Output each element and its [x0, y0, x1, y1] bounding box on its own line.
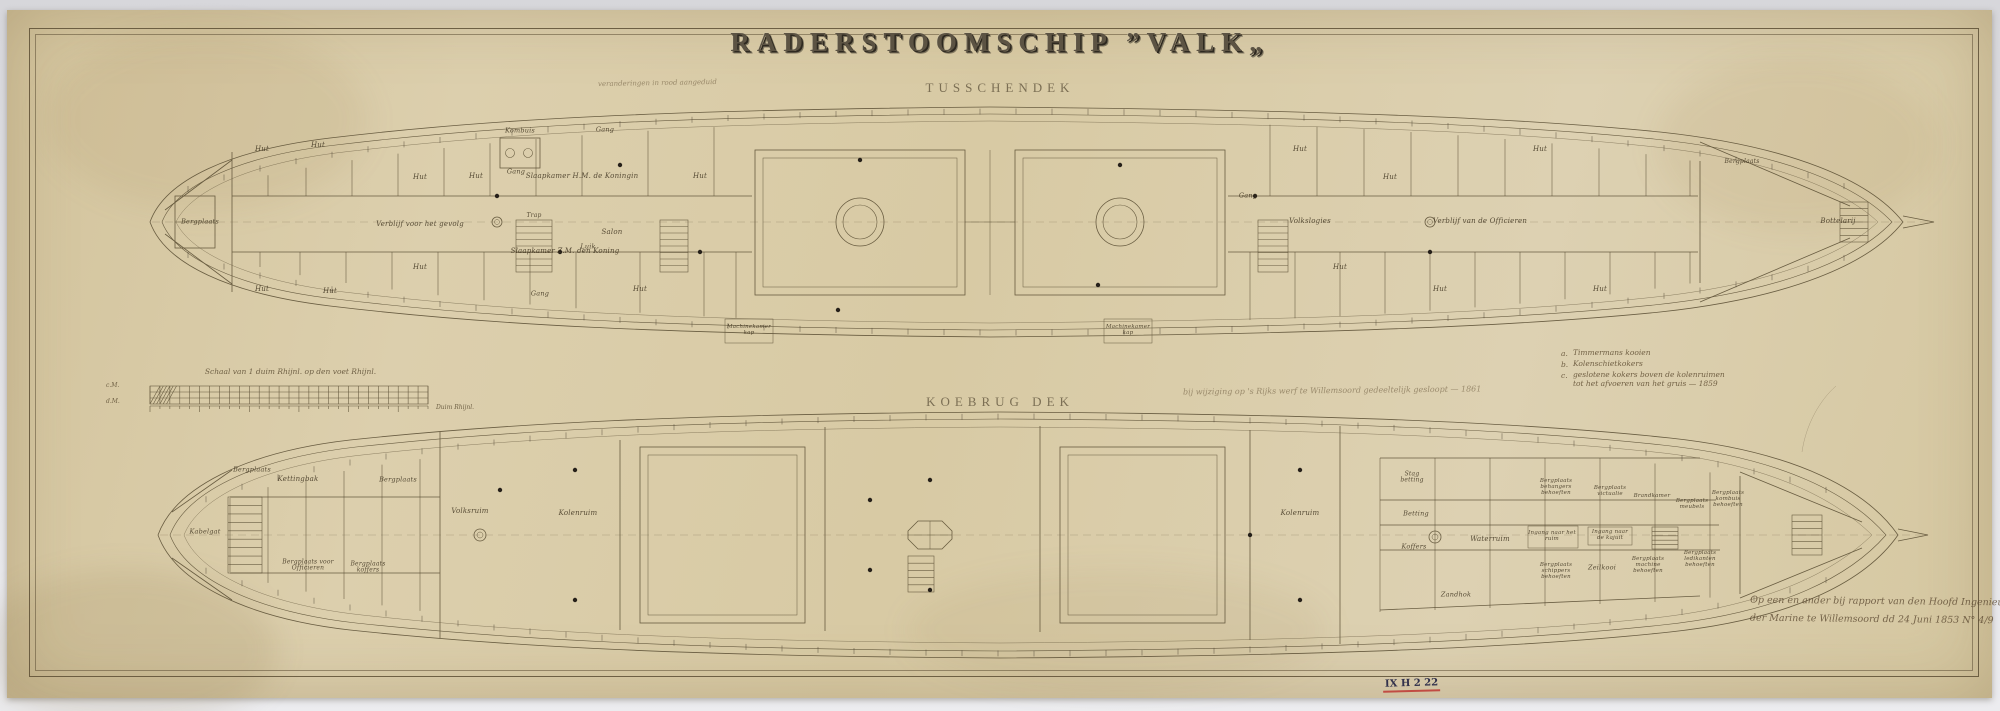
room-label: Volksruim [451, 508, 488, 516]
room-label: Bottelarij [1820, 218, 1855, 226]
room-label: Bergplaats behangers behoeften [1529, 479, 1584, 497]
room-label: Machinekamer kap [1105, 325, 1151, 337]
room-label: Slaapkamer H.M. de Koningin [526, 173, 639, 181]
room-label: Luik [580, 243, 595, 250]
room-label: Verblijf van de Officieren [1433, 218, 1527, 226]
room-label: Hut [1433, 286, 1447, 294]
room-label: Bergplaats victualie [1585, 486, 1635, 498]
room-label: Brandkamer [1632, 494, 1672, 500]
inscription-line-2: der Marine te Willemsoord dd 24 Juni 185… [1750, 609, 2000, 629]
room-label: Hut [255, 286, 269, 294]
legend: a.Timmermans kooienb.Kolenschietkokersc.… [1561, 349, 1725, 390]
legend-key: a. [1561, 349, 1573, 358]
room-label: Hut [469, 173, 483, 181]
room-label: Hut [323, 288, 337, 296]
room-label: Hut [1383, 174, 1397, 182]
legend-item: c.geslotene kokers boven de kolenruimen … [1561, 371, 1725, 388]
room-label: Kolenruim [559, 510, 598, 518]
room-label: Kettingbak [278, 476, 319, 484]
legend-text: Timmermans kooien [1573, 349, 1651, 358]
legend-item: b.Kolenschietkokers [1561, 360, 1725, 369]
scale-row-label-cm: c.M. [106, 382, 119, 389]
plan-world: RADERSTOOMSCHIP ”VALK„ veranderingen in … [0, 0, 2000, 711]
legend-item: a.Timmermans kooien [1561, 349, 1725, 358]
room-label: Ingang naar de kajuit [1588, 530, 1632, 542]
room-label: Hut [1293, 146, 1307, 154]
scale-row-label-dm: d.M. [106, 398, 120, 405]
room-label: Hut [693, 173, 707, 181]
drawing-title: RADERSTOOMSCHIP ”VALK„ [0, 27, 2000, 58]
room-label: Kabelgat [189, 528, 220, 535]
inscription-line-1: Op een en ander bij rapport van den Hoof… [1750, 592, 2000, 612]
scale-end-label: Duim Rhijnl. [436, 404, 474, 411]
room-label: Hut [413, 174, 427, 182]
room-label: Zandhok [1441, 591, 1471, 598]
room-label: Bergplaats [1724, 159, 1759, 165]
room-label: Gang [507, 168, 525, 175]
room-label: Trap [526, 213, 541, 219]
room-label: Bergplaats [379, 476, 417, 483]
room-label: Bergplaats voor Officieren [273, 560, 343, 573]
room-label: Ingang naar het ruim [1528, 531, 1576, 543]
room-label: Hut [1333, 264, 1347, 272]
legend-text: Kolenschietkokers [1573, 360, 1643, 369]
scale-caption: Schaal van 1 duim Rhijnl. op den voet Rh… [168, 367, 413, 376]
room-label: Hut [255, 146, 269, 154]
room-label: Gang [531, 290, 549, 297]
archivist-inscription: Op een en ander bij rapport van den Hoof… [1750, 592, 2000, 630]
room-label: Bergplaats koffers [342, 562, 394, 575]
room-label: Hut [633, 286, 647, 294]
room-label: Hut [1533, 146, 1547, 154]
deck-label-koebrugdek: KOEBRUG DEK [0, 394, 2000, 410]
boiler-casing-hatches [725, 150, 1225, 343]
room-label: Kombuis [505, 127, 535, 134]
room-label: Machinekamer kap [726, 325, 772, 337]
room-label: Hut [1593, 286, 1607, 294]
room-label: Hut [311, 142, 325, 150]
room-label: Bergplaats schippers behoeften [1529, 563, 1584, 581]
room-label: Bergplaats machine behoeften [1623, 557, 1673, 575]
room-label: Waterruim [1470, 536, 1510, 544]
deck-label-tusschendek: TUSSCHENDEK [0, 80, 2000, 96]
room-label: Stag betting [1393, 472, 1431, 485]
room-label: Kolenruim [1281, 510, 1320, 518]
room-label: Verblijf voor het gevolg [376, 221, 464, 229]
room-label: Zeilkooi [1588, 564, 1616, 571]
room-label: Bergplaats kombuis behoeften [1702, 491, 1754, 509]
room-label: Gang [1239, 192, 1257, 199]
legend-text: geslotene kokers boven de kolenruimen to… [1573, 371, 1725, 388]
room-label: Volkslogies [1289, 218, 1331, 226]
legend-key: b. [1561, 360, 1573, 369]
room-label: Bergplaats ledikanten behoeften [1673, 551, 1728, 569]
photo-background: RADERSTOOMSCHIP ”VALK„ veranderingen in … [0, 0, 2000, 711]
room-label: Bergplaats [181, 218, 219, 225]
room-label: Salon [602, 229, 623, 237]
room-label: Hut [413, 264, 427, 272]
room-label: Slaapkamer Z.M. den Koning [511, 248, 620, 256]
room-label: Betting [1403, 510, 1429, 517]
room-label: Koffers [1401, 543, 1426, 550]
archive-shelf-mark: IX H 2 22 [1383, 677, 1441, 692]
legend-key: c. [1561, 371, 1573, 388]
room-label: Bergplaats [233, 466, 271, 473]
room-label: Gang [596, 126, 614, 133]
lower-hull-outline [158, 412, 1928, 658]
